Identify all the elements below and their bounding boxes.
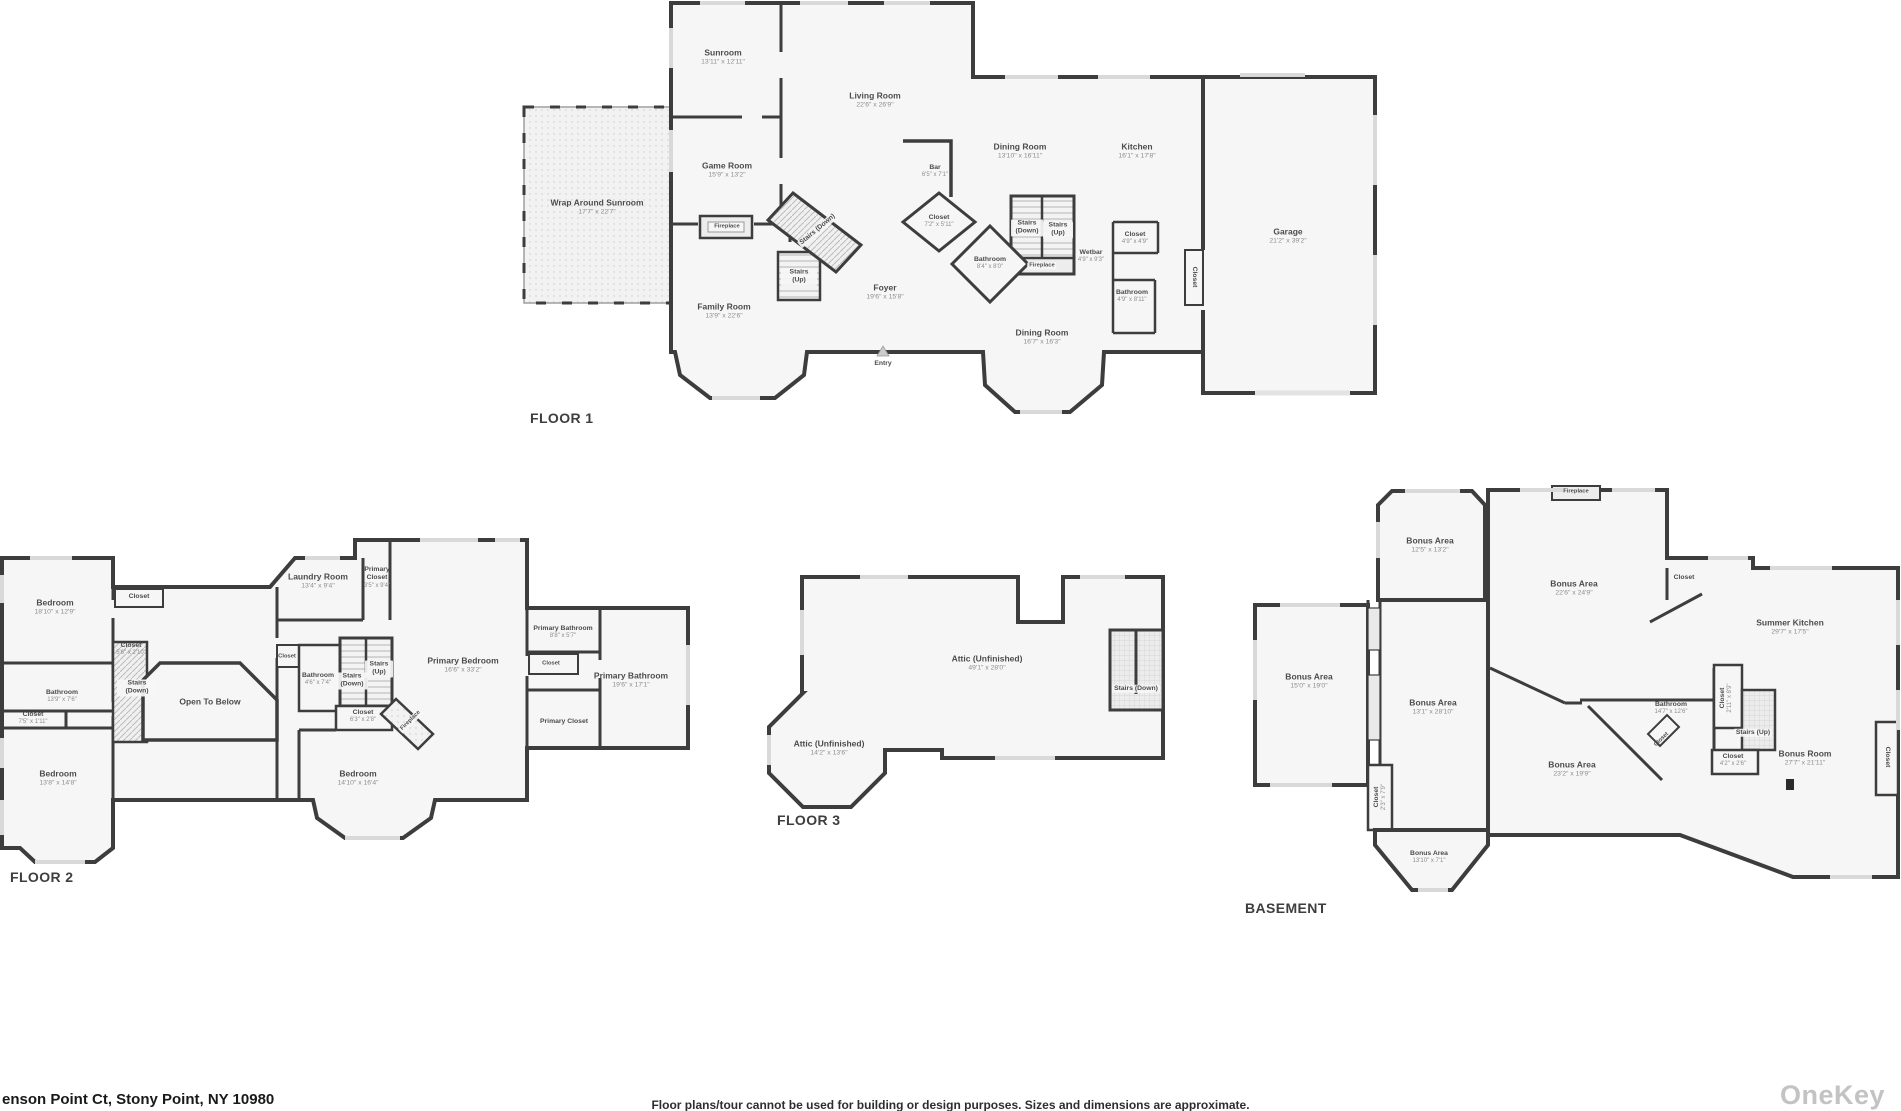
closet-label: Closet2'3" x 7'9" bbox=[1373, 784, 1389, 810]
stairs-label: Stairs (Up) bbox=[365, 661, 393, 678]
room-label: Bedroom14'10" x 16'4" bbox=[337, 769, 378, 788]
closet-label: Closet7'5" x 1'11" bbox=[18, 711, 47, 727]
room-label: Bonus Area22'6" x 24'9" bbox=[1550, 579, 1597, 598]
room-label: Bathroom4'6" x 7'4" bbox=[302, 672, 334, 688]
room-label: Primary Closet3'5" x 9'4" bbox=[357, 566, 397, 590]
room-label: Laundry Room13'4" x 9'4" bbox=[288, 572, 348, 591]
room-label: Sunroom13'11" x 12'11" bbox=[701, 48, 745, 67]
floor3-plan bbox=[769, 577, 1163, 807]
room-label: Bathroom4'9" x 8'11" bbox=[1116, 289, 1148, 305]
stairs-label: Stairs (Up) bbox=[1043, 222, 1073, 239]
room-label: Closet7'2" x 5'11" bbox=[924, 214, 953, 230]
room-label: Bedroom18'10" x 12'9" bbox=[34, 598, 75, 617]
room-label: Primary Bedroom16'6" x 33'2" bbox=[427, 656, 498, 675]
room-label: Kitchen16'1" x 17'8" bbox=[1118, 142, 1155, 161]
room-label: Primary Closet bbox=[540, 718, 588, 726]
room-label: Dining Room13'10" x 16'11" bbox=[994, 142, 1047, 161]
room-label: Bonus Area23'2" x 19'9" bbox=[1548, 760, 1595, 779]
room-label: Dining Room16'7" x 16'3" bbox=[1016, 328, 1069, 347]
floor1-plan bbox=[524, 3, 1375, 412]
room-label: Attic (Unfinished)14'2" x 13'6" bbox=[794, 739, 865, 758]
room-label: Bathroom13'9" x 7'6" bbox=[46, 689, 78, 705]
room-label: Summer Kitchen29'7" x 17'5" bbox=[1756, 618, 1824, 637]
room-label: Bathroom14'7" x 12'6" bbox=[1655, 701, 1688, 717]
room-label: Bonus Area12'5" x 13'2" bbox=[1406, 536, 1453, 555]
stairs-label: Stairs (Down) bbox=[117, 680, 157, 697]
floor-title-2: FLOOR 2 bbox=[10, 869, 73, 885]
closet-label: Closet2'11" x 8'9" bbox=[1719, 683, 1735, 712]
closet-label: Closet bbox=[129, 593, 150, 601]
floorplan-canvas bbox=[0, 0, 1901, 1111]
room-label: Bonus Area13'10" x 7'1" bbox=[1410, 850, 1448, 866]
room-label: Primary Bathroom19'6" x 17'1" bbox=[594, 671, 668, 690]
stairs-label: Stairs (Down) bbox=[336, 673, 368, 690]
open-to-below-label: Open To Below bbox=[179, 697, 240, 708]
room-label: Bathroom8'4" x 8'0" bbox=[974, 256, 1006, 272]
stairs-label: Stairs (Down) bbox=[1011, 220, 1043, 237]
disclaimer-text: Floor plans/tour cannot be used for buil… bbox=[0, 1098, 1901, 1111]
floor-title-3: FLOOR 3 bbox=[777, 812, 840, 828]
floor-title-basement: BASEMENT bbox=[1245, 900, 1327, 916]
closet-label: Closet bbox=[1883, 747, 1891, 768]
room-label: Garage21'2" x 39'2" bbox=[1269, 227, 1306, 246]
closet-label: Closet5'6" x 2'10" bbox=[116, 642, 146, 658]
stairs-label: Stairs (Up) bbox=[1734, 729, 1772, 737]
room-label: Living Room22'6" x 26'9" bbox=[849, 91, 900, 110]
room-label: Foyer19'6" x 15'8" bbox=[866, 283, 903, 302]
room-label: Bonus Area15'0" x 19'0" bbox=[1285, 672, 1332, 691]
room-label: Attic (Unfinished)49'1" x 28'0" bbox=[952, 654, 1023, 673]
fireplace-label: Fireplace bbox=[1027, 262, 1056, 269]
floor-title-1: FLOOR 1 bbox=[530, 410, 593, 426]
room-label: Wetbar4'9" x 9'3" bbox=[1078, 249, 1104, 265]
room-label: Game Room15'9" x 13'2" bbox=[702, 161, 752, 180]
stairs-label: Stairs (Up) bbox=[781, 269, 817, 286]
closet-label: Closet6'3" x 2'8" bbox=[350, 709, 376, 725]
stairs-up-icon bbox=[1742, 690, 1775, 750]
room-label: Closet4'9" x 4'9" bbox=[1122, 231, 1148, 247]
room-label: Primary Bathroom8'8" x 5'7" bbox=[533, 625, 592, 641]
fireplace-label: Fireplace bbox=[714, 223, 739, 230]
stairs-label: Stairs (Down) bbox=[1112, 685, 1160, 693]
room-label: Wrap Around Sunroom17'7" x 22'7" bbox=[550, 198, 643, 217]
floorplan-page: Sunroom13'11" x 12'11" Living Room22'6" … bbox=[0, 0, 1901, 1111]
closet-label: Closet bbox=[1674, 574, 1695, 582]
room-label: Bar6'5" x 7'1" bbox=[922, 164, 948, 180]
closet-label: Closet bbox=[278, 653, 296, 660]
fireplace-label: Fireplace bbox=[1563, 488, 1588, 495]
room-label: Bonus Area13'1" x 28'10" bbox=[1409, 698, 1456, 717]
room-label: Bonus Room27'7" x 21'11" bbox=[1779, 749, 1832, 768]
entry-label: Entry bbox=[874, 360, 891, 368]
closet-label: Closet4'2" x 2'6" bbox=[1720, 753, 1746, 769]
closet-label: Closet bbox=[542, 660, 560, 667]
room-label: Bedroom13'8" x 14'8" bbox=[39, 769, 76, 788]
closet-label: Closet bbox=[1190, 267, 1198, 288]
onekey-logo: OneKey bbox=[1780, 1080, 1885, 1111]
basement-plan bbox=[1255, 486, 1898, 890]
room-label: Family Room13'9" x 22'6" bbox=[697, 302, 750, 321]
